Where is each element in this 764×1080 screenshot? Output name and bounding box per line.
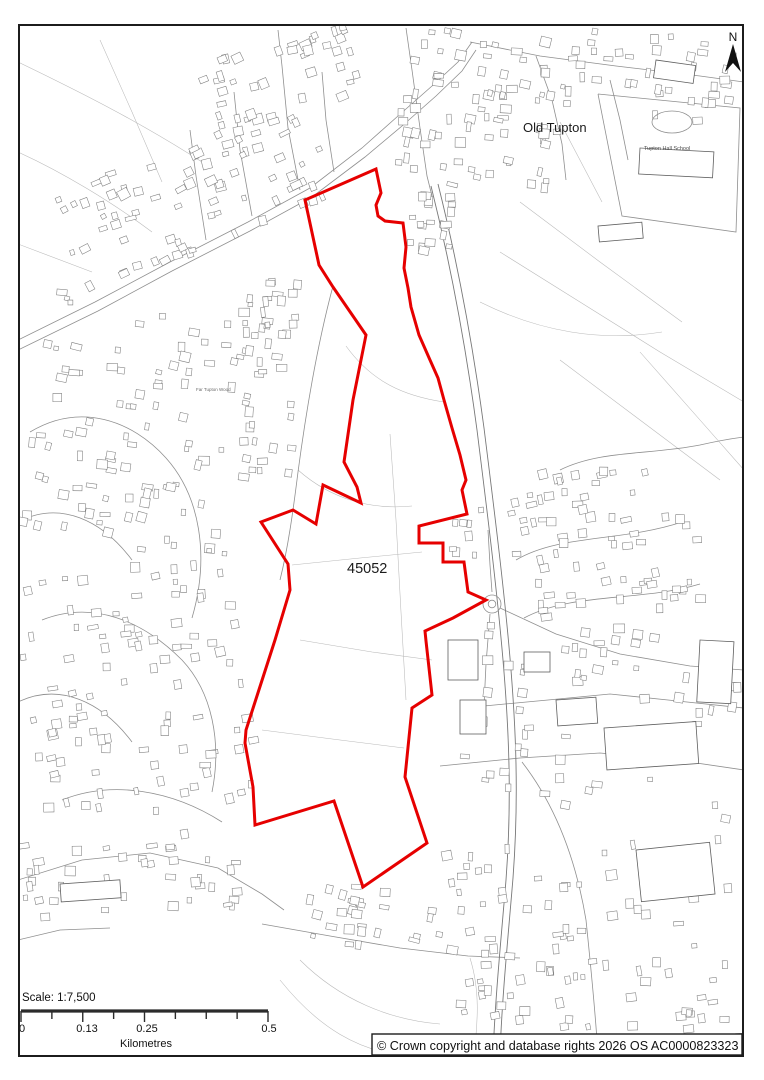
site-ref-label: 45052 [347,561,387,577]
scale-text: Scale: 1:7,500 [22,992,96,1004]
north-arrow-label: N [729,30,738,44]
scale-label-1: 0.13 [76,1023,97,1035]
scale-label-3: 0.5 [261,1023,276,1035]
roundabout-outer [483,595,501,613]
large-buildings-layer [60,60,734,902]
scale-bar: Scale: 1:7,500 0 0.13 0.25 0.5 Kilometre… [20,986,278,1053]
scale-label-2: 0.25 [136,1023,157,1035]
copyright-box: © Crown copyright and database rights 20… [372,1034,742,1055]
label-far-tupton-wood: Far Tupton Wood [196,387,231,392]
map-labels: Old Tupton Tupton Hall School Far Tupton… [196,120,690,392]
label-old-tupton: Old Tupton [523,120,587,135]
pond-outline [652,111,692,133]
buildings-layer [20,26,742,1055]
map-canvas: Old Tupton Tupton Hall School Far Tupton… [20,26,742,1055]
north-arrow: N [725,30,741,72]
roundabout-inner [488,600,496,608]
railway-layer [431,184,516,1055]
map-frame: Old Tupton Tupton Hall School Far Tupton… [18,24,744,1057]
scale-label-0: 0 [20,1023,25,1035]
north-arrow-icon [725,44,741,72]
copyright-text: © Crown copyright and database rights 20… [377,1039,738,1053]
scale-unit-label: Kilometres [120,1038,172,1050]
label-tupton-hall-school: Tupton Hall School [644,146,690,152]
site-boundary-polygon [245,169,486,887]
